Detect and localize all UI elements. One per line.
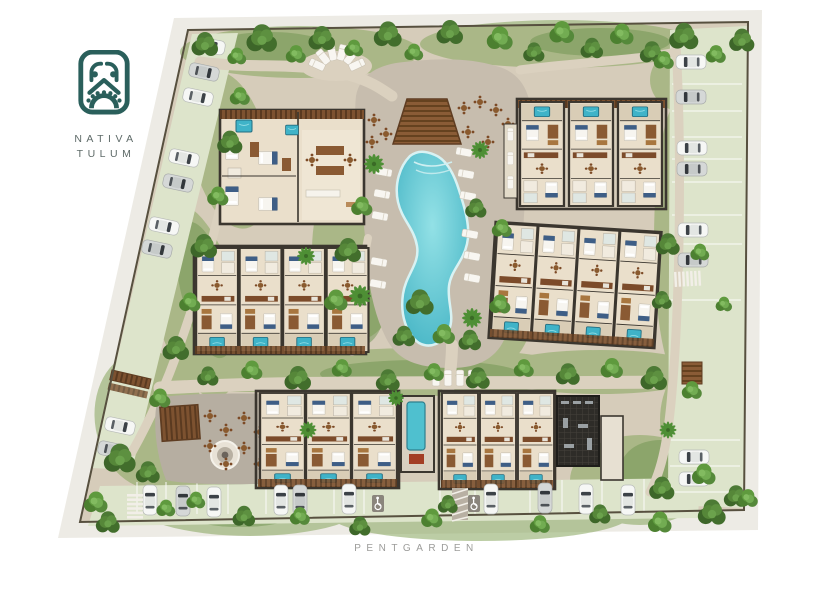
car	[676, 90, 706, 104]
apartment-unit	[572, 228, 619, 344]
service-annex	[601, 416, 623, 480]
apartment-unit	[283, 248, 325, 352]
apartment-unit	[618, 102, 662, 206]
brand-block: NATIVA TULUM	[58, 50, 150, 162]
apartment-unit	[518, 393, 554, 488]
car	[676, 55, 706, 69]
car	[484, 484, 498, 514]
car	[342, 484, 356, 514]
apartment-unit	[442, 393, 478, 488]
building-d	[489, 222, 662, 348]
apartment-unit	[196, 248, 238, 352]
apartment-unit	[520, 102, 564, 206]
lap-pool-courtyard	[401, 396, 434, 472]
car	[679, 450, 709, 464]
brand-name-line1: NATIVA	[62, 132, 150, 147]
building-a	[220, 110, 364, 224]
apartment-unit	[352, 393, 397, 487]
car	[677, 141, 707, 155]
brand-name-line2: TULUM	[62, 147, 150, 162]
lap-pool	[407, 402, 425, 450]
apartment-unit	[306, 393, 351, 487]
reception-counter	[306, 190, 340, 197]
car	[538, 483, 552, 513]
building-f	[439, 391, 555, 489]
apartment-unit	[569, 102, 613, 206]
car	[274, 485, 288, 515]
gym-building	[557, 396, 599, 466]
apartment-unit	[260, 393, 305, 487]
building-b	[504, 99, 666, 209]
building-e	[256, 391, 399, 488]
east-entrance-gate	[682, 362, 702, 384]
car	[621, 485, 635, 515]
apartment-unit	[532, 226, 579, 342]
apartment-unit	[480, 393, 516, 488]
lounge-rug	[409, 454, 424, 464]
mayan-glyph-logo	[75, 50, 133, 120]
master-plan-page: NATIVA TULUM PENTGARDEN	[0, 0, 828, 591]
apartment-unit	[491, 223, 538, 339]
car	[143, 485, 157, 515]
car	[207, 487, 221, 517]
accessible-parking-spot	[468, 495, 480, 512]
restaurant-palapa	[160, 405, 200, 442]
project-name-label: PENTGARDEN	[0, 543, 828, 554]
brand-name: NATIVA TULUM	[58, 132, 150, 162]
car	[579, 484, 593, 514]
accessible-parking-spot	[372, 495, 384, 512]
apartment-unit	[240, 248, 282, 352]
apartment-unit	[613, 231, 660, 347]
car	[678, 223, 708, 237]
car	[677, 162, 707, 176]
